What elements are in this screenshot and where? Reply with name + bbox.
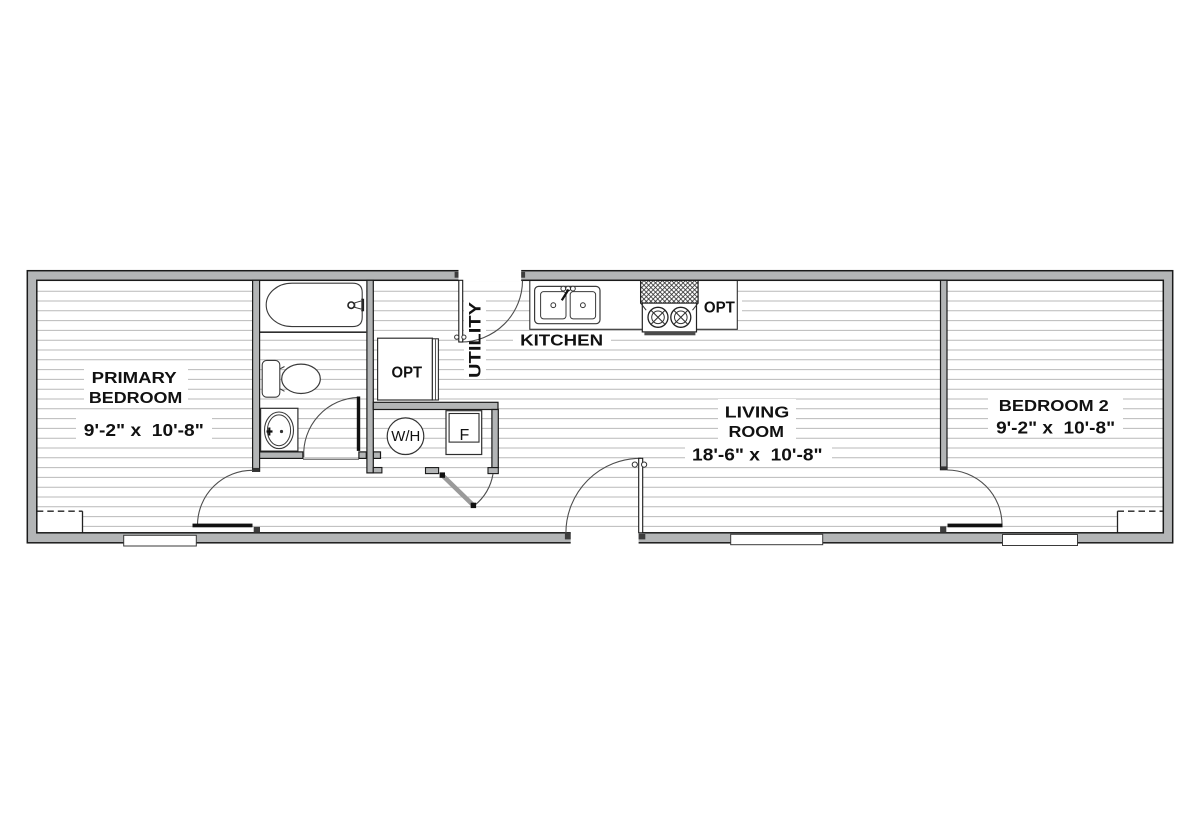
svg-text:LIVING: LIVING: [725, 405, 790, 422]
svg-text:BEDROOM: BEDROOM: [89, 390, 183, 407]
svg-text:UTILITY: UTILITY: [465, 301, 484, 378]
svg-text:W/H: W/H: [391, 429, 420, 445]
svg-text:9'-2" x 10'-8": 9'-2" x 10'-8": [84, 420, 204, 440]
svg-text:KITCHEN: KITCHEN: [520, 333, 603, 350]
svg-text:BEDROOM 2: BEDROOM 2: [999, 398, 1109, 415]
svg-text:9'-2" x 10'-8": 9'-2" x 10'-8": [996, 418, 1115, 438]
svg-text:OPT: OPT: [392, 365, 423, 382]
svg-text:ROOM: ROOM: [729, 424, 785, 441]
svg-text:F: F: [460, 427, 470, 444]
svg-text:OPT: OPT: [704, 299, 735, 316]
svg-text:18'-6" x 10'-8": 18'-6" x 10'-8": [692, 445, 823, 465]
svg-text:PRIMARY: PRIMARY: [92, 370, 177, 387]
